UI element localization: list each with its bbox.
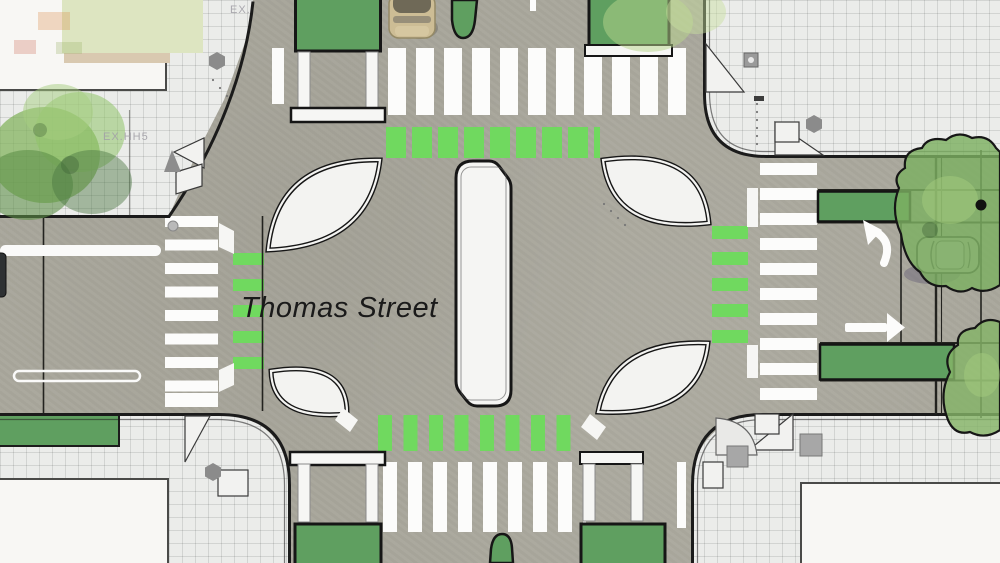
hexagon-utility-icon: [209, 52, 225, 70]
island-post: [366, 52, 378, 109]
curb-top-right: [705, 0, 1000, 157]
island-band: [291, 108, 385, 122]
median-nose-south: [490, 534, 513, 563]
corner-island-southeast: [598, 343, 708, 413]
straight-arrow-icon: [845, 313, 905, 342]
transit-island-south-left: [290, 452, 385, 563]
angled-curb-piece: [219, 363, 234, 392]
curb-ramp: [174, 138, 204, 168]
tree-trunk-dot: [976, 200, 987, 211]
angled-curb-piece: [219, 223, 234, 254]
hexagon-utility-icon: [806, 115, 822, 133]
edge-line-outline-bottom: [14, 371, 140, 381]
planter-box: [295, 524, 381, 563]
tree-grate: [800, 434, 822, 456]
curb-ramp: [218, 470, 248, 496]
crosswalk-end-bar: [165, 393, 218, 405]
existing-utility-note: EX.HH5: [103, 131, 149, 143]
intersection-plan: Thomas Street EX.HH5 EX.: [0, 0, 1000, 563]
island-post: [631, 464, 643, 521]
bike-stripe: [677, 462, 686, 528]
building-interior-marks: [14, 12, 82, 54]
planter-box: [581, 524, 665, 563]
island-post: [366, 464, 378, 522]
street-name-label: Thomas Street: [241, 292, 438, 325]
island-post: [747, 345, 758, 378]
curb-ramp: [185, 416, 210, 462]
west-road-markings: [0, 221, 218, 405]
edge-line-rounded-top: [0, 245, 161, 256]
island-post: [583, 464, 595, 521]
median-island: [456, 161, 511, 406]
utility-vault: [754, 96, 764, 101]
island-band: [290, 452, 385, 465]
center-median: [456, 161, 511, 406]
tree-grate: [727, 446, 748, 467]
turn-arrows: [845, 220, 905, 342]
existing-note: EX.: [230, 4, 251, 16]
curved-turn-arrow-icon: [863, 220, 887, 263]
island-post: [298, 52, 310, 109]
curb-ramp: [703, 462, 723, 488]
bollard-dot: [168, 221, 178, 231]
curb-ramp: [755, 414, 779, 434]
angled-curb-piece: [581, 414, 606, 440]
car-top-view-icon: [389, 0, 438, 39]
parked-car-edge: [0, 253, 6, 297]
planter-box: [296, 0, 381, 51]
plan-graphics: [0, 0, 1000, 563]
median-nose-north: [452, 0, 477, 38]
transit-island-north-left: [272, 0, 385, 122]
corner-island-northeast: [603, 158, 709, 225]
tree-canopy-icon: [943, 320, 1000, 436]
car-windshield: [393, 16, 431, 23]
island-post: [298, 464, 310, 522]
utility-box-lid: [748, 57, 754, 63]
bike-stripe: [272, 48, 284, 104]
car-hood: [395, 26, 429, 36]
curb-ramp: [775, 122, 799, 142]
curb-ramp: [706, 44, 744, 92]
lane-dash-north: [530, 0, 536, 11]
island-post: [747, 188, 758, 227]
corner-island-northwest: [268, 160, 380, 250]
green-bike-box-south: [820, 345, 954, 380]
tree-canopy-icon: [603, 0, 726, 52]
car-roof: [393, 0, 431, 13]
curb-ramp: [176, 164, 202, 194]
corner-island-southwest: [271, 369, 347, 415]
curb-inner-top-right: [710, 0, 1000, 152]
transit-island-south-right: [580, 414, 686, 563]
island-band: [580, 452, 643, 464]
tree-canopy-icon: [0, 84, 132, 220]
